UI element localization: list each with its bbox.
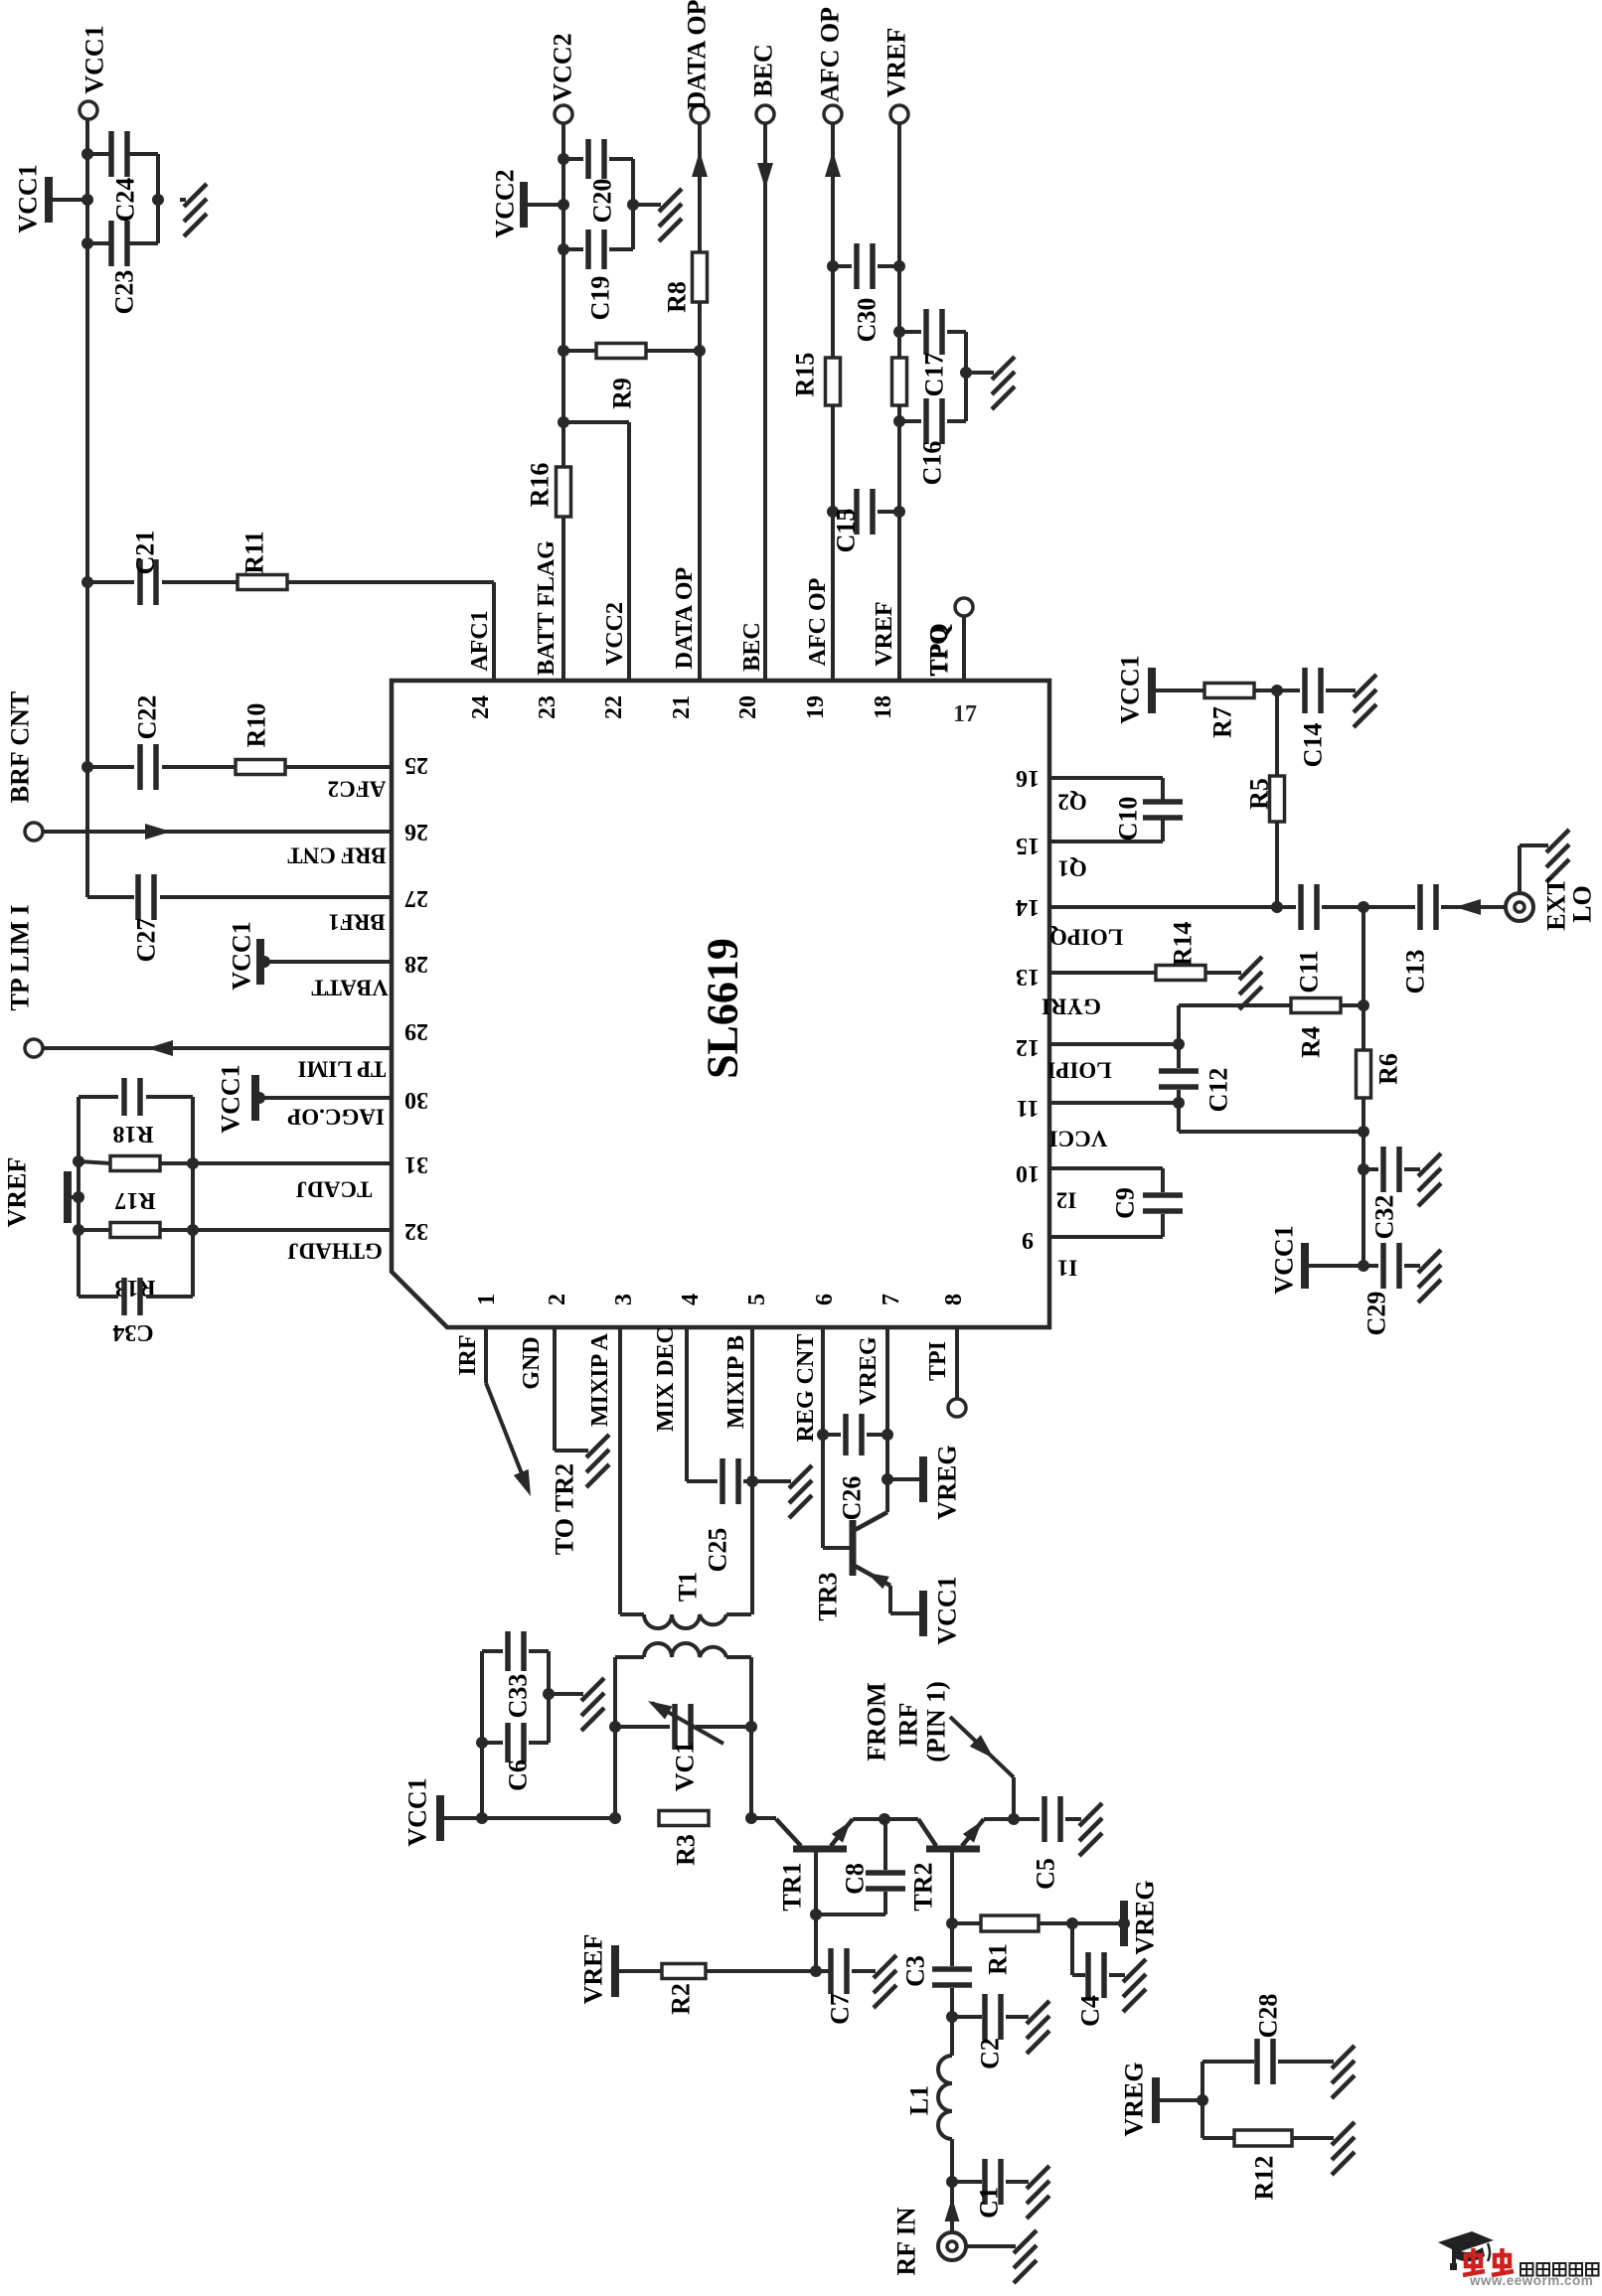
- svg-text:21: 21: [669, 695, 695, 719]
- svg-text:C27: C27: [132, 918, 161, 963]
- svg-text:LO: LO: [1568, 885, 1597, 923]
- svg-text:C24: C24: [111, 178, 140, 223]
- svg-text:27: 27: [404, 885, 428, 911]
- svg-text:SL6619: SL6619: [699, 938, 747, 1079]
- svg-text:Q1: Q1: [1057, 856, 1086, 881]
- svg-text:MIXIP B: MIXIP B: [723, 1335, 749, 1429]
- svg-text:R6: R6: [1374, 1053, 1403, 1085]
- svg-text:AFC OP: AFC OP: [816, 7, 845, 102]
- svg-text:VREF: VREF: [882, 28, 911, 98]
- svg-text:C3: C3: [901, 1955, 930, 1987]
- svg-text:R4: R4: [1297, 1026, 1326, 1058]
- svg-text:10: 10: [1016, 1160, 1040, 1186]
- svg-text:VCC2: VCC2: [491, 169, 520, 237]
- svg-text:DATA OP: DATA OP: [683, 0, 712, 109]
- svg-text:TP LIMI: TP LIMI: [298, 1057, 387, 1082]
- svg-text:C5: C5: [1032, 1858, 1060, 1890]
- svg-text:C23: C23: [110, 270, 139, 315]
- svg-text:R12: R12: [1250, 2156, 1279, 2201]
- svg-text:C17: C17: [920, 353, 949, 397]
- svg-text:32: 32: [404, 1218, 428, 1244]
- svg-text:AFC1: AFC1: [467, 610, 493, 671]
- svg-text:RF IN: RF IN: [892, 2207, 921, 2275]
- svg-text:TR3: TR3: [814, 1572, 843, 1620]
- svg-text:18: 18: [871, 695, 896, 719]
- svg-text:31: 31: [404, 1151, 428, 1177]
- svg-text:VCC1: VCC1: [14, 164, 43, 232]
- svg-text:EXT: EXT: [1542, 877, 1571, 930]
- svg-text:C6: C6: [504, 1760, 533, 1791]
- svg-text:26: 26: [404, 819, 428, 844]
- svg-text:LOIPQ: LOIPQ: [1049, 925, 1123, 950]
- svg-text:5: 5: [744, 1294, 770, 1305]
- svg-text:VREF: VREF: [872, 601, 897, 666]
- svg-text:VCC1: VCC1: [80, 25, 109, 93]
- svg-text:23: 23: [535, 695, 561, 719]
- svg-text:20: 20: [735, 695, 761, 719]
- svg-text:9: 9: [1022, 1227, 1034, 1253]
- svg-text:Q2: Q2: [1057, 790, 1086, 815]
- svg-text:I2: I2: [1056, 1188, 1076, 1213]
- svg-text:VCC1: VCC1: [1116, 655, 1145, 723]
- svg-text:AFC2: AFC2: [328, 777, 387, 802]
- svg-text:VCC2: VCC2: [602, 602, 628, 666]
- svg-text:VCC1: VCC1: [403, 1777, 432, 1846]
- svg-text:C21: C21: [131, 531, 160, 575]
- svg-text:11: 11: [1017, 1095, 1040, 1121]
- svg-text:TR1: TR1: [778, 1862, 807, 1911]
- svg-text:3: 3: [611, 1294, 637, 1305]
- svg-text:13: 13: [1016, 964, 1040, 990]
- svg-text:REG CNT: REG CNT: [793, 1334, 819, 1443]
- svg-text:www.eeworm.com: www.eeworm.com: [1469, 2273, 1593, 2288]
- svg-text:C14: C14: [1299, 723, 1328, 768]
- svg-text:R5: R5: [1245, 778, 1274, 810]
- svg-text:TO TR2: TO TR2: [551, 1463, 579, 1555]
- svg-text:AFC OP: AFC OP: [805, 578, 831, 667]
- svg-text:VREG: VREG: [856, 1336, 881, 1406]
- svg-text:8: 8: [941, 1294, 967, 1305]
- svg-text:BRF1: BRF1: [328, 910, 386, 935]
- svg-text:VC1: VC1: [671, 1742, 700, 1792]
- svg-text:R9: R9: [608, 378, 637, 409]
- svg-text:6: 6: [812, 1294, 838, 1305]
- svg-text:C22: C22: [133, 695, 162, 740]
- svg-text:24: 24: [468, 695, 494, 719]
- svg-text:MIXIP A: MIXIP A: [587, 1332, 613, 1427]
- svg-text:7: 7: [879, 1294, 904, 1305]
- svg-text:BEC: BEC: [739, 622, 765, 671]
- svg-text:FROM: FROM: [863, 1682, 891, 1760]
- svg-text:GND: GND: [519, 1336, 545, 1389]
- svg-text:C20: C20: [588, 179, 617, 224]
- svg-text:C26: C26: [838, 1476, 867, 1521]
- svg-text:4: 4: [678, 1294, 704, 1305]
- svg-text:GTHADJ: GTHADJ: [287, 1239, 383, 1264]
- svg-text:19: 19: [803, 695, 829, 719]
- svg-text:C32: C32: [1370, 1195, 1399, 1240]
- svg-text:C9: C9: [1111, 1187, 1140, 1219]
- svg-text:VREG: VREG: [1120, 2062, 1149, 2136]
- svg-text:C16: C16: [918, 441, 947, 486]
- svg-text:R17: R17: [114, 1187, 155, 1213]
- svg-text:C2: C2: [976, 2038, 1005, 2069]
- svg-text:VREF: VREF: [579, 1934, 608, 2005]
- svg-text:12: 12: [1016, 1034, 1040, 1060]
- svg-text:LOIPI: LOIPI: [1046, 1058, 1111, 1083]
- svg-text:22: 22: [601, 695, 627, 719]
- svg-text:VREF: VREF: [3, 1157, 32, 1228]
- svg-text:25: 25: [404, 752, 428, 778]
- svg-text:VREG: VREG: [933, 1445, 962, 1519]
- svg-text:BRF CNT: BRF CNT: [6, 691, 35, 803]
- svg-text:TR2: TR2: [909, 1862, 938, 1911]
- svg-text:MIX DEC: MIX DEC: [653, 1326, 679, 1432]
- svg-text:IRF: IRF: [894, 1703, 923, 1748]
- svg-text:I1: I1: [1057, 1256, 1077, 1281]
- svg-text:C11: C11: [1295, 950, 1324, 993]
- svg-text:2: 2: [545, 1294, 570, 1305]
- svg-text:17: 17: [953, 701, 977, 727]
- svg-text:IRF: IRF: [455, 1334, 481, 1375]
- svg-text:VCC1: VCC1: [933, 1576, 962, 1644]
- svg-text:C15: C15: [832, 509, 861, 553]
- svg-text:T1: T1: [674, 1572, 703, 1602]
- svg-text:15: 15: [1016, 833, 1040, 858]
- svg-text:IAGC.OP: IAGC.OP: [287, 1105, 385, 1130]
- svg-text:C25: C25: [704, 1528, 732, 1573]
- svg-text:29: 29: [404, 1018, 428, 1044]
- svg-text:14: 14: [1016, 894, 1040, 920]
- svg-text:C8: C8: [841, 1863, 870, 1895]
- svg-text:VCC1: VCC1: [217, 1064, 245, 1133]
- svg-text:16: 16: [1016, 765, 1040, 791]
- svg-text:R18: R18: [112, 1121, 153, 1147]
- svg-text:(PIN 1): (PIN 1): [922, 1681, 951, 1762]
- svg-text:C34: C34: [112, 1319, 153, 1345]
- svg-text:C4: C4: [1076, 1995, 1105, 2027]
- svg-text:VCCI: VCCI: [1049, 1127, 1108, 1151]
- svg-text:C13: C13: [1401, 950, 1430, 995]
- svg-text:BEC: BEC: [749, 44, 778, 96]
- svg-text:BRF CNT: BRF CNT: [287, 843, 386, 868]
- svg-text:28: 28: [404, 951, 428, 977]
- svg-text:C7: C7: [826, 1993, 855, 2025]
- svg-text:R15: R15: [791, 353, 820, 397]
- svg-text:R3: R3: [672, 1834, 701, 1866]
- svg-text:R14: R14: [1169, 922, 1198, 967]
- svg-text:C1: C1: [975, 2187, 1004, 2219]
- svg-text:VREG: VREG: [1131, 1880, 1160, 1954]
- svg-text:TP LIM I: TP LIM I: [6, 905, 35, 1011]
- svg-text:C33: C33: [504, 1674, 533, 1719]
- svg-text:R2: R2: [667, 1983, 696, 2015]
- svg-text:C29: C29: [1362, 1292, 1391, 1336]
- svg-text:TCADJ: TCADJ: [296, 1177, 373, 1202]
- svg-text:C12: C12: [1204, 1068, 1233, 1113]
- svg-text:VCC1: VCC1: [1270, 1225, 1299, 1294]
- svg-text:DATA OP: DATA OP: [672, 567, 698, 669]
- svg-text:BATT FLAG: BATT FLAG: [534, 540, 560, 676]
- svg-text:C30: C30: [853, 298, 881, 343]
- svg-text:GYRI: GYRI: [1041, 995, 1101, 1019]
- svg-text:R16: R16: [526, 463, 555, 508]
- svg-text:C19: C19: [586, 276, 615, 321]
- svg-text:R11: R11: [240, 531, 269, 573]
- svg-text:VCC2: VCC2: [549, 33, 577, 101]
- svg-text:L1: L1: [905, 2085, 934, 2115]
- svg-text:C10: C10: [1114, 797, 1143, 842]
- svg-text:R7: R7: [1208, 706, 1237, 738]
- svg-text:R1: R1: [984, 1943, 1013, 1975]
- svg-text:R8: R8: [663, 281, 692, 313]
- svg-text:TPQ: TPQ: [926, 626, 952, 675]
- svg-text:1: 1: [474, 1294, 500, 1305]
- svg-text:VCC1: VCC1: [228, 921, 256, 990]
- svg-text:C28: C28: [1254, 1994, 1283, 2039]
- svg-text:VBATT: VBATT: [311, 976, 389, 1000]
- svg-text:30: 30: [404, 1087, 428, 1113]
- svg-text:R10: R10: [242, 703, 271, 748]
- svg-text:TPI: TPI: [925, 1341, 951, 1381]
